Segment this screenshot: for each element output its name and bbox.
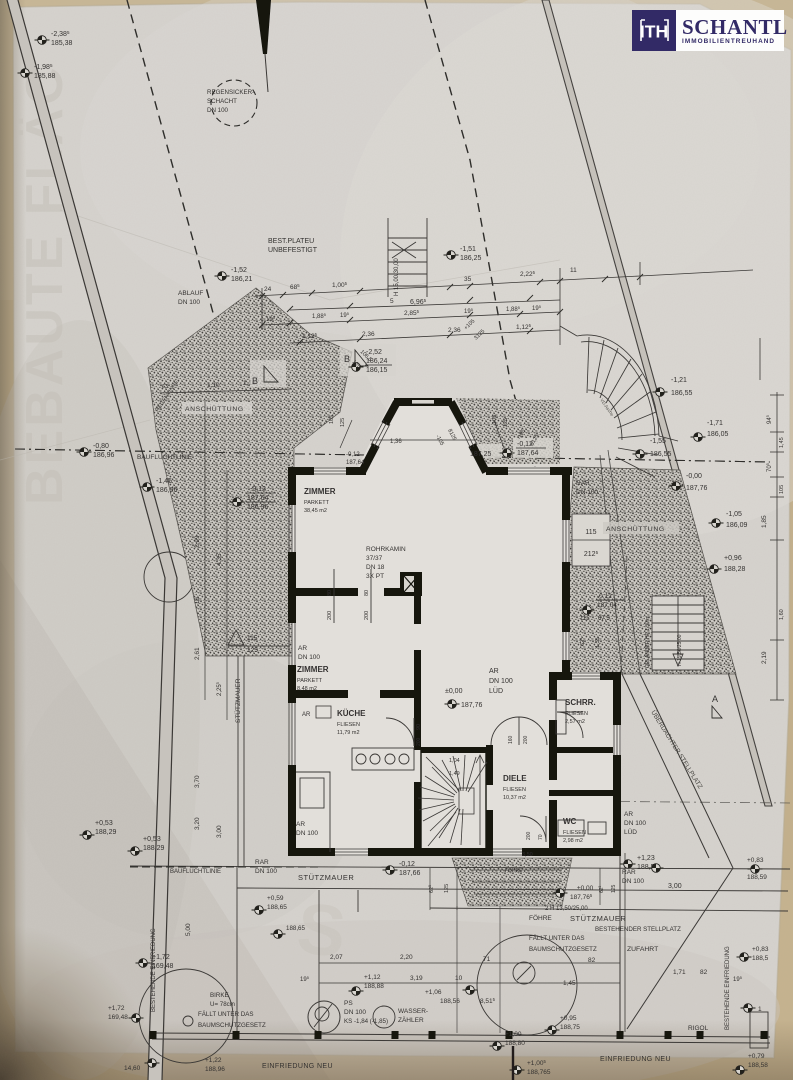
svg-text:+0,79: +0,79 bbox=[748, 1053, 765, 1060]
svg-text:BAUFLUCHTLINIE: BAUFLUCHTLINIE bbox=[170, 869, 221, 875]
svg-text:2,36: 2,36 bbox=[362, 331, 375, 338]
svg-text:STÜTZMAUER: STÜTZMAUER bbox=[298, 873, 354, 882]
svg-text:2,99: 2,99 bbox=[194, 535, 201, 548]
svg-text:187,76: 187,76 bbox=[461, 702, 483, 709]
svg-text:EINFRIEDUNG NEU: EINFRIEDUNG NEU bbox=[600, 1056, 671, 1063]
svg-text:+0,96: +0,96 bbox=[724, 555, 742, 562]
svg-text:125: 125 bbox=[611, 884, 617, 893]
svg-text:115: 115 bbox=[247, 635, 258, 642]
svg-text:1,04: 1,04 bbox=[449, 758, 460, 764]
svg-text:LÜD: LÜD bbox=[489, 687, 503, 695]
svg-text:1,35: 1,35 bbox=[595, 637, 601, 648]
svg-text:DN 100: DN 100 bbox=[296, 830, 318, 837]
svg-text:2,98 m2: 2,98 m2 bbox=[563, 838, 583, 844]
svg-text:BIRKE: BIRKE bbox=[210, 992, 229, 999]
svg-text:+1,23: +1,23 bbox=[637, 855, 655, 862]
svg-text:±0,00: ±0,00 bbox=[445, 688, 463, 695]
svg-text:125: 125 bbox=[503, 418, 509, 427]
svg-text:DN 100: DN 100 bbox=[344, 1009, 366, 1016]
svg-text:80: 80 bbox=[364, 590, 370, 596]
svg-text:+0,53: +0,53 bbox=[143, 836, 161, 843]
svg-text:71: 71 bbox=[483, 956, 491, 963]
svg-text:LÜD: LÜD bbox=[624, 828, 637, 836]
svg-text:BEST.PLATEU: BEST.PLATEU bbox=[268, 238, 314, 245]
svg-text:125: 125 bbox=[340, 418, 346, 427]
svg-text:125: 125 bbox=[247, 647, 258, 654]
svg-text:2 H 13,50/25,00: 2 H 13,50/25,00 bbox=[545, 906, 588, 912]
svg-text:188,75: 188,75 bbox=[560, 1024, 580, 1031]
svg-text:SCHACHT: SCHACHT bbox=[207, 98, 237, 105]
svg-text:188,56: 188,56 bbox=[440, 998, 460, 1005]
svg-text:-0,80: -0,80 bbox=[93, 443, 109, 450]
svg-text:RAR: RAR bbox=[255, 859, 269, 866]
svg-text:FLIESEN: FLIESEN bbox=[337, 722, 360, 728]
svg-text:188,29: 188,29 bbox=[143, 845, 165, 852]
svg-text:70: 70 bbox=[538, 834, 544, 840]
svg-text:ZÄHLER: ZÄHLER bbox=[398, 1016, 424, 1024]
svg-text:UNBEFESTIGT: UNBEFESTIGT bbox=[268, 247, 318, 254]
svg-text:187,64: 187,64 bbox=[247, 495, 269, 502]
svg-text:FÖHRE: FÖHRE bbox=[505, 867, 523, 874]
svg-text:DN 100: DN 100 bbox=[576, 489, 598, 496]
svg-text:3,50: 3,50 bbox=[522, 852, 533, 858]
svg-text:FLIESEN: FLIESEN bbox=[503, 787, 526, 793]
svg-text:186,55: 186,55 bbox=[671, 390, 693, 397]
svg-text:+0,83: +0,83 bbox=[747, 857, 764, 864]
svg-text:ANSCHÜTTUNG: ANSCHÜTTUNG bbox=[606, 525, 665, 533]
svg-text:186,15: 186,15 bbox=[366, 367, 388, 374]
svg-text:24: 24 bbox=[264, 286, 272, 293]
svg-text:10: 10 bbox=[195, 597, 201, 604]
svg-text:187,64: 187,64 bbox=[346, 460, 365, 466]
svg-text:200: 200 bbox=[416, 737, 422, 746]
svg-text:DN 100: DN 100 bbox=[622, 878, 644, 885]
svg-text:188,28: 188,28 bbox=[724, 566, 746, 573]
svg-text:+1,06: +1,06 bbox=[425, 989, 442, 996]
svg-text:125: 125 bbox=[444, 884, 450, 893]
svg-text:200: 200 bbox=[526, 831, 532, 840]
svg-text:+1,12: +1,12 bbox=[364, 974, 381, 981]
svg-text:H 15,00/30,00: H 15,00/30,00 bbox=[394, 258, 400, 296]
svg-text:2,07: 2,07 bbox=[330, 954, 343, 961]
svg-text:PARKETT: PARKETT bbox=[297, 678, 323, 684]
svg-text:188,65: 188,65 bbox=[286, 925, 305, 932]
svg-text:187,76: 187,76 bbox=[686, 485, 708, 492]
svg-text:B: B bbox=[252, 376, 258, 386]
svg-text:35: 35 bbox=[464, 276, 472, 283]
svg-text:-1,52: -1,52 bbox=[231, 267, 247, 274]
svg-text:H 15,50/25,00: H 15,50/25,00 bbox=[677, 634, 683, 666]
svg-text:DN 100: DN 100 bbox=[624, 820, 646, 827]
svg-text:11,79 m2: 11,79 m2 bbox=[337, 730, 360, 736]
svg-text:186,05: 186,05 bbox=[707, 431, 729, 438]
svg-text:188,88: 188,88 bbox=[364, 983, 384, 990]
svg-text:-0,12: -0,12 bbox=[399, 861, 415, 868]
svg-text:105: 105 bbox=[329, 415, 335, 424]
svg-text:10,37 m2: 10,37 m2 bbox=[503, 795, 526, 801]
svg-text:1,10: 1,10 bbox=[207, 382, 220, 389]
svg-text:-1,21: -1,21 bbox=[671, 377, 687, 384]
svg-text:-0,12: -0,12 bbox=[250, 486, 266, 493]
svg-text:2,61: 2,61 bbox=[194, 647, 201, 660]
svg-text:188,96: 188,96 bbox=[205, 1066, 225, 1073]
svg-text:2,36: 2,36 bbox=[448, 327, 461, 334]
svg-text:U= 78cm: U= 78cm bbox=[210, 1001, 235, 1008]
svg-text:67,5: 67,5 bbox=[598, 616, 610, 622]
svg-text:14,60: 14,60 bbox=[124, 1065, 141, 1072]
svg-text:115: 115 bbox=[585, 529, 596, 536]
svg-text:186,21: 186,21 bbox=[231, 276, 253, 283]
svg-text:1,49: 1,49 bbox=[449, 771, 460, 777]
svg-text:2,20: 2,20 bbox=[400, 954, 413, 961]
svg-text:82: 82 bbox=[588, 957, 596, 964]
svg-text:FÖHRE: FÖHRE bbox=[529, 914, 552, 922]
svg-text:SCHANTL: SCHANTL bbox=[682, 15, 788, 39]
svg-text:RAR: RAR bbox=[576, 480, 590, 487]
svg-text:169,48: 169,48 bbox=[108, 1014, 128, 1021]
svg-text:PARKETT: PARKETT bbox=[304, 500, 330, 506]
svg-text:186,96: 186,96 bbox=[156, 487, 178, 494]
svg-text:A: A bbox=[712, 694, 718, 704]
svg-text:SCHRR.: SCHRR. bbox=[565, 698, 596, 707]
svg-text:4,35: 4,35 bbox=[216, 553, 223, 566]
svg-text:+0,59: +0,59 bbox=[267, 895, 284, 902]
svg-text:1,60: 1,60 bbox=[779, 609, 785, 620]
svg-text:2,57 m2: 2,57 m2 bbox=[565, 719, 585, 725]
svg-text:ANSCHÜTTUNG: ANSCHÜTTUNG bbox=[185, 405, 244, 413]
svg-text:AR: AR bbox=[298, 645, 307, 652]
svg-text:200: 200 bbox=[327, 611, 333, 620]
svg-text:160: 160 bbox=[508, 735, 514, 744]
svg-text:188,65: 188,65 bbox=[267, 904, 287, 911]
svg-text:PS: PS bbox=[344, 1000, 353, 1007]
svg-text:115: 115 bbox=[580, 616, 590, 622]
svg-text:105: 105 bbox=[779, 485, 785, 494]
svg-text:AR: AR bbox=[624, 811, 633, 818]
svg-text:3,70: 3,70 bbox=[194, 775, 201, 788]
svg-text:38,45 m2: 38,45 m2 bbox=[304, 508, 327, 514]
svg-text:185,88: 185,88 bbox=[34, 73, 56, 80]
svg-text:STÜTZMAUER: STÜTZMAUER bbox=[570, 914, 626, 923]
svg-text:-0,12: -0,12 bbox=[597, 593, 612, 600]
svg-text:-1,05: -1,05 bbox=[726, 511, 742, 518]
svg-text:AR: AR bbox=[489, 668, 499, 675]
svg-text:2,19: 2,19 bbox=[761, 651, 768, 664]
svg-text:BESTEHENDER STELLPLATZ: BESTEHENDER STELLPLATZ bbox=[595, 926, 681, 933]
svg-text:200: 200 bbox=[364, 611, 370, 620]
svg-text:-0,00: -0,00 bbox=[686, 473, 702, 480]
svg-text:WASSER-: WASSER- bbox=[398, 1008, 428, 1015]
svg-text:80: 80 bbox=[327, 590, 333, 596]
svg-text:187,64: 187,64 bbox=[517, 450, 539, 457]
svg-text:+1,00: +1,00 bbox=[505, 1031, 522, 1038]
svg-text:8,48 m2: 8,48 m2 bbox=[297, 686, 317, 692]
svg-text:187,04: 187,04 bbox=[597, 602, 617, 609]
svg-text:DN 100: DN 100 bbox=[298, 654, 320, 661]
svg-text:63: 63 bbox=[162, 384, 168, 390]
svg-text:-1,45: -1,45 bbox=[156, 478, 172, 485]
svg-text:-1,55: -1,55 bbox=[650, 438, 666, 445]
svg-text:187,765: 187,765 bbox=[570, 893, 593, 901]
svg-text:188,5: 188,5 bbox=[752, 955, 769, 962]
svg-text:187,66: 187,66 bbox=[399, 870, 421, 877]
svg-text:AR: AR bbox=[296, 821, 305, 828]
svg-text:1: 1 bbox=[758, 1006, 762, 1013]
svg-text:5,00: 5,00 bbox=[185, 923, 192, 936]
svg-text:BAUFLUCHTLINIE: BAUFLUCHTLINIE bbox=[137, 454, 193, 461]
svg-text:186,25: 186,25 bbox=[460, 255, 482, 262]
svg-text:BESTEHENDE EINFRIEDUNG: BESTEHENDE EINFRIEDUNG bbox=[725, 946, 731, 1030]
svg-text:186,96: 186,96 bbox=[93, 452, 115, 459]
svg-text:185,38: 185,38 bbox=[51, 40, 73, 47]
svg-text:186,55: 186,55 bbox=[650, 451, 672, 458]
svg-text:1,71: 1,71 bbox=[673, 969, 686, 976]
svg-text:1,45: 1,45 bbox=[779, 437, 785, 448]
svg-text:DN 100: DN 100 bbox=[255, 868, 277, 875]
svg-text:+1,22: +1,22 bbox=[205, 1057, 222, 1064]
svg-text:DN 100: DN 100 bbox=[178, 299, 200, 306]
svg-text:200: 200 bbox=[523, 735, 529, 744]
svg-text:10: 10 bbox=[455, 975, 463, 982]
svg-text:DIELE: DIELE bbox=[503, 774, 527, 783]
svg-text:+0,53: +0,53 bbox=[95, 820, 113, 827]
svg-text:188,29: 188,29 bbox=[95, 829, 117, 836]
svg-text:ZIMMER: ZIMMER bbox=[304, 487, 336, 496]
svg-text:-1,71: -1,71 bbox=[707, 420, 723, 427]
svg-text:B: B bbox=[344, 354, 350, 364]
svg-text:IMMOBILIENTREUHAND: IMMOBILIENTREUHAND bbox=[682, 38, 775, 45]
svg-text:188,80: 188,80 bbox=[505, 1040, 525, 1047]
svg-text:-0,12: -0,12 bbox=[346, 452, 360, 458]
svg-text:+0,83: +0,83 bbox=[752, 946, 769, 953]
svg-text:1,85: 1,85 bbox=[761, 515, 768, 528]
svg-text:3,00: 3,00 bbox=[668, 883, 682, 890]
svg-text:±0,00: ±0,00 bbox=[577, 885, 594, 892]
svg-text:186,96: 186,96 bbox=[247, 504, 269, 511]
svg-text:ROHRKAMIN: ROHRKAMIN bbox=[366, 546, 406, 553]
svg-text:WC: WC bbox=[563, 817, 577, 826]
svg-text:1,45: 1,45 bbox=[563, 980, 576, 987]
svg-text:11: 11 bbox=[570, 267, 577, 274]
svg-text:ITH: ITH bbox=[640, 22, 668, 42]
svg-text:5: 5 bbox=[390, 298, 394, 305]
svg-text:REGENSICKER-: REGENSICKER- bbox=[207, 89, 254, 96]
svg-text:RAR: RAR bbox=[622, 869, 636, 876]
svg-text:188,765: 188,765 bbox=[527, 1069, 551, 1076]
svg-text:188,58: 188,58 bbox=[748, 1062, 768, 1069]
svg-text:ABLAUF: ABLAUF bbox=[178, 290, 203, 297]
svg-text:KÜCHE: KÜCHE bbox=[337, 709, 366, 718]
svg-text:-1,51: -1,51 bbox=[460, 246, 476, 253]
svg-text:DN 100: DN 100 bbox=[489, 678, 513, 685]
svg-text:FLIESEN: FLIESEN bbox=[563, 830, 586, 836]
svg-text:82: 82 bbox=[700, 969, 708, 976]
svg-text:3,00: 3,00 bbox=[216, 825, 223, 838]
svg-text:186,09: 186,09 bbox=[726, 522, 748, 529]
svg-text:ZUFAHRT: ZUFAHRT bbox=[627, 946, 658, 953]
svg-text:3,20: 3,20 bbox=[194, 817, 201, 830]
svg-text:AR: AR bbox=[302, 712, 311, 718]
svg-text:BAUMSCHUTZGESETZ: BAUMSCHUTZGESETZ bbox=[529, 946, 597, 953]
svg-text:DN 100: DN 100 bbox=[207, 107, 229, 114]
svg-text:3X PT: 3X PT bbox=[366, 573, 384, 580]
svg-text:DN 18: DN 18 bbox=[366, 564, 385, 571]
svg-text:3,19: 3,19 bbox=[410, 975, 423, 982]
svg-text:BESTEHENDE EINFRIEDUNG: BESTEHENDE EINFRIEDUNG bbox=[151, 928, 157, 1012]
svg-text:37/37: 37/37 bbox=[366, 555, 383, 562]
svg-text:+1,72: +1,72 bbox=[108, 1005, 125, 1012]
svg-text:+0,95: +0,95 bbox=[560, 1015, 577, 1022]
svg-text:GELÄNDER HP 1,50m: GELÄNDER HP 1,50m bbox=[644, 617, 651, 668]
svg-text:KS -1,84 (-1,85): KS -1,84 (-1,85) bbox=[344, 1018, 388, 1025]
svg-text:FLIESEN: FLIESEN bbox=[565, 711, 588, 717]
svg-text:ZIMMER: ZIMMER bbox=[297, 665, 329, 674]
svg-text:FÄLLT UNTER DAS: FÄLLT UNTER DAS bbox=[198, 1011, 253, 1018]
svg-text:187,25: 187,25 bbox=[470, 451, 492, 458]
svg-text:90: 90 bbox=[416, 724, 422, 730]
svg-text:RIGOL: RIGOL bbox=[688, 1025, 709, 1032]
svg-text:EINFRIEDUNG NEU: EINFRIEDUNG NEU bbox=[262, 1063, 333, 1070]
svg-text:188,59: 188,59 bbox=[747, 874, 767, 881]
svg-text:BAUMSCHUTZGESETZ: BAUMSCHUTZGESETZ bbox=[198, 1022, 266, 1029]
